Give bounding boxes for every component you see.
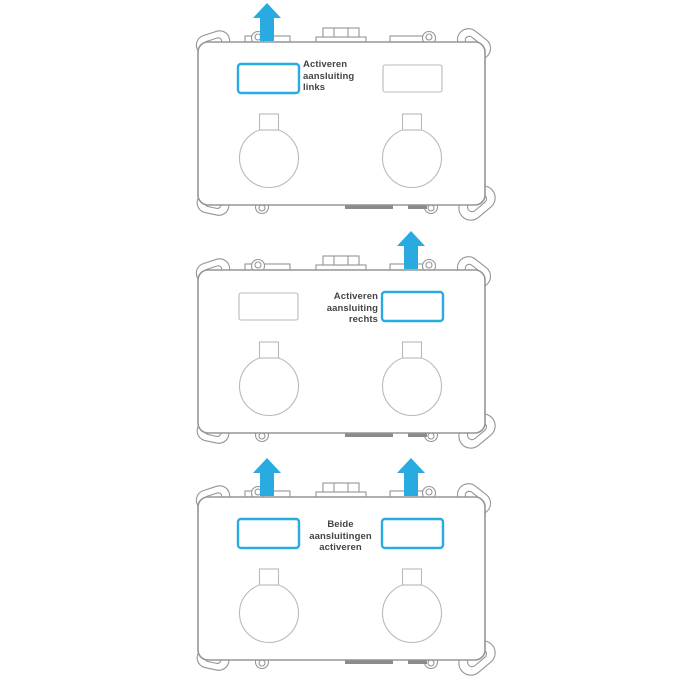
caption-activate-both: Beide aansluitingen activeren (290, 519, 391, 554)
unit-bottom (194, 458, 500, 680)
device-illustration-middle (194, 252, 500, 453)
up-arrow-right-bottom (397, 458, 425, 496)
valve-units-diagram (0, 0, 685, 685)
up-arrow-right-middle (397, 231, 425, 269)
highlighted-slot-right-bottom (382, 519, 443, 548)
caption-activate-left: Activeren aansluiting links (303, 59, 387, 94)
device-illustration-bottom (194, 479, 500, 680)
diagram-canvas: Activeren aansluiting links Activeren aa… (0, 0, 685, 685)
highlighted-slot-right-middle (382, 292, 443, 321)
unit-top (194, 3, 500, 225)
highlighted-slot-left-top (238, 64, 299, 93)
device-illustration-top (194, 24, 500, 225)
unit-middle (194, 231, 500, 453)
caption-activate-right: Activeren aansluiting rechts (284, 291, 378, 326)
